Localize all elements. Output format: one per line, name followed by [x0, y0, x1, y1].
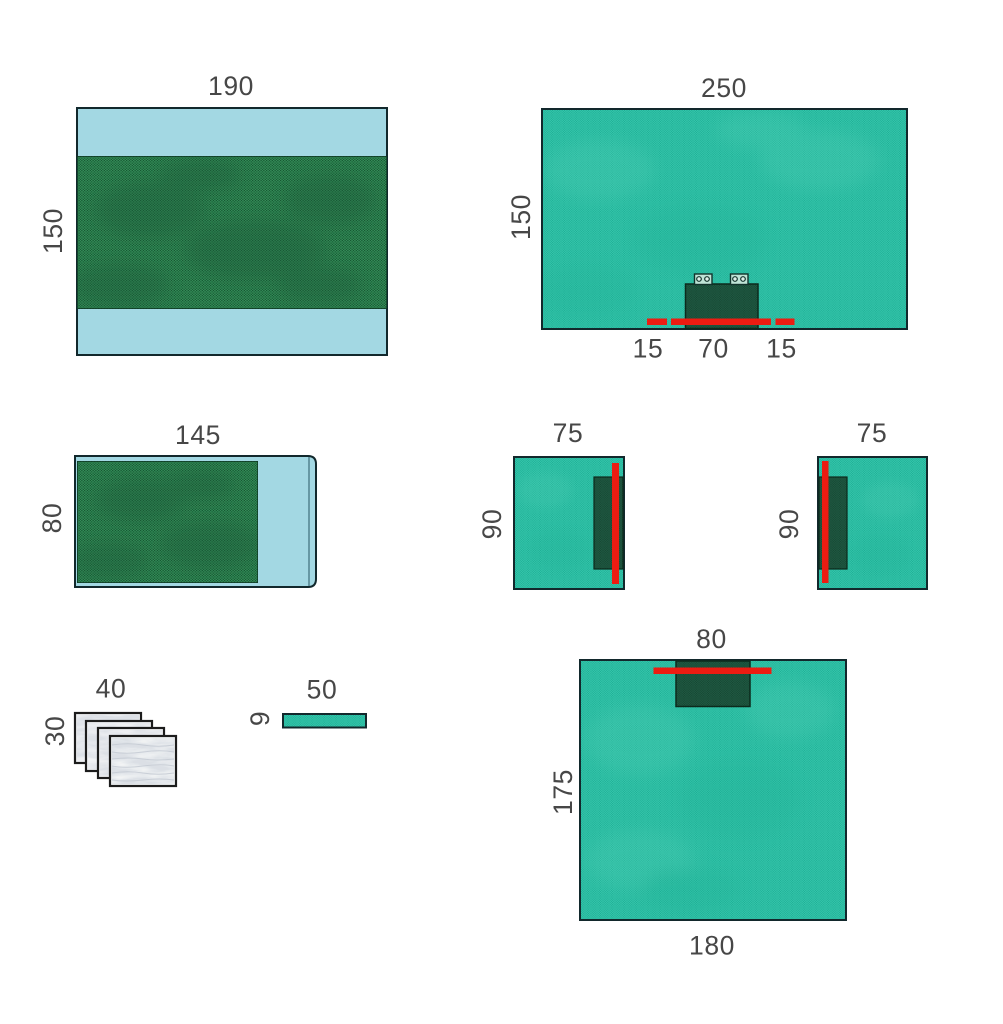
svg-text:90: 90	[477, 509, 507, 540]
svg-text:250: 250	[701, 73, 747, 103]
svg-text:80: 80	[696, 624, 727, 654]
svg-text:50: 50	[307, 675, 338, 705]
svg-text:9: 9	[245, 711, 275, 726]
svg-text:30: 30	[40, 716, 70, 747]
svg-text:150: 150	[506, 194, 536, 240]
svg-text:15: 15	[766, 334, 797, 364]
svg-text:150: 150	[38, 208, 68, 254]
svg-text:75: 75	[857, 418, 888, 448]
svg-text:70: 70	[698, 334, 729, 364]
svg-text:175: 175	[548, 769, 578, 815]
svg-text:190: 190	[208, 71, 254, 101]
svg-text:180: 180	[689, 931, 735, 961]
svg-text:75: 75	[553, 418, 584, 448]
svg-text:90: 90	[774, 509, 804, 540]
svg-text:145: 145	[175, 420, 221, 450]
svg-text:80: 80	[37, 503, 67, 534]
svg-text:40: 40	[96, 674, 127, 704]
svg-text:15: 15	[633, 334, 664, 364]
